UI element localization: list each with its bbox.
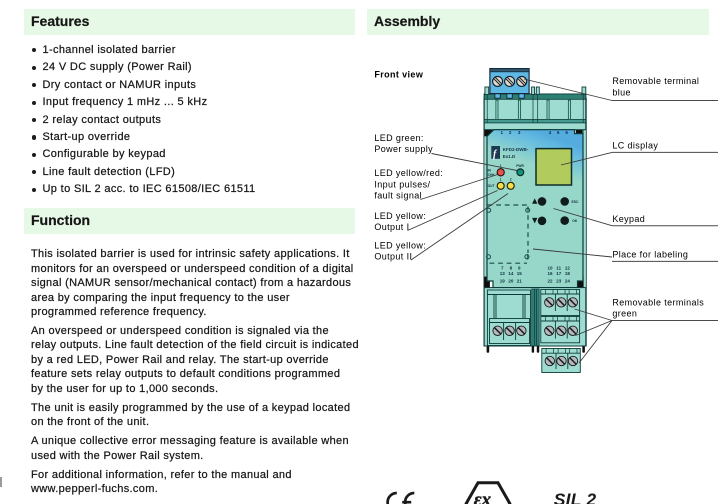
svg-text:15: 15 <box>517 271 523 276</box>
svg-text:22: 22 <box>547 278 553 283</box>
svg-text:LED yellow:: LED yellow: <box>374 211 426 221</box>
svg-text:Place for labeling: Place for labeling <box>612 250 688 260</box>
svg-text:3: 3 <box>518 130 521 135</box>
svg-text:SIL 2: SIL 2 <box>554 490 597 504</box>
svg-text:fault signal: fault signal <box>374 190 422 200</box>
svg-text:LED yellow/red:: LED yellow/red: <box>374 168 443 178</box>
svg-text:5: 5 <box>557 130 560 135</box>
svg-text:17: 17 <box>556 271 562 276</box>
svg-text:24: 24 <box>565 278 571 283</box>
svg-text:13: 13 <box>500 271 506 276</box>
svg-text:LED yellow:: LED yellow: <box>374 240 426 250</box>
svg-text:1: 1 <box>501 130 504 135</box>
svg-text:ESC: ESC <box>572 200 580 204</box>
svg-text:6: 6 <box>565 130 568 135</box>
svg-text:Front view: Front view <box>374 70 423 80</box>
svg-text:18: 18 <box>565 271 571 276</box>
svg-text:LC display: LC display <box>612 141 658 151</box>
svg-text:Keypad: Keypad <box>612 214 645 224</box>
svg-text:Input pulses/: Input pulses/ <box>374 179 430 189</box>
svg-text:2: 2 <box>509 130 512 135</box>
svg-text:Removable terminals: Removable terminals <box>612 298 704 308</box>
svg-text:Ex1.D: Ex1.D <box>503 154 516 159</box>
svg-text:PWR: PWR <box>516 164 524 168</box>
svg-text:OUT: OUT <box>488 184 495 188</box>
svg-text:Output I: Output I <box>374 222 409 232</box>
svg-text:KFD2-DWB-: KFD2-DWB- <box>503 147 529 152</box>
svg-text:19: 19 <box>500 278 506 283</box>
svg-text:21: 21 <box>517 278 523 283</box>
svg-text:Output II: Output II <box>374 251 412 261</box>
svg-text:2: 2 <box>510 177 512 181</box>
svg-text:εx: εx <box>474 490 492 504</box>
svg-text:23: 23 <box>556 278 562 283</box>
svg-text:green: green <box>612 309 637 319</box>
svg-text:blue: blue <box>612 87 631 97</box>
svg-text:14: 14 <box>508 271 514 276</box>
svg-text:LED green:: LED green: <box>374 133 423 143</box>
svg-text:16: 16 <box>547 271 553 276</box>
svg-text:Power supply: Power supply <box>374 144 433 154</box>
svg-text:4: 4 <box>549 130 552 135</box>
svg-text:20: 20 <box>508 278 514 283</box>
svg-text:1: 1 <box>500 177 502 181</box>
svg-text:OK: OK <box>572 219 578 223</box>
svg-text:Removable terminal: Removable terminal <box>612 76 699 86</box>
